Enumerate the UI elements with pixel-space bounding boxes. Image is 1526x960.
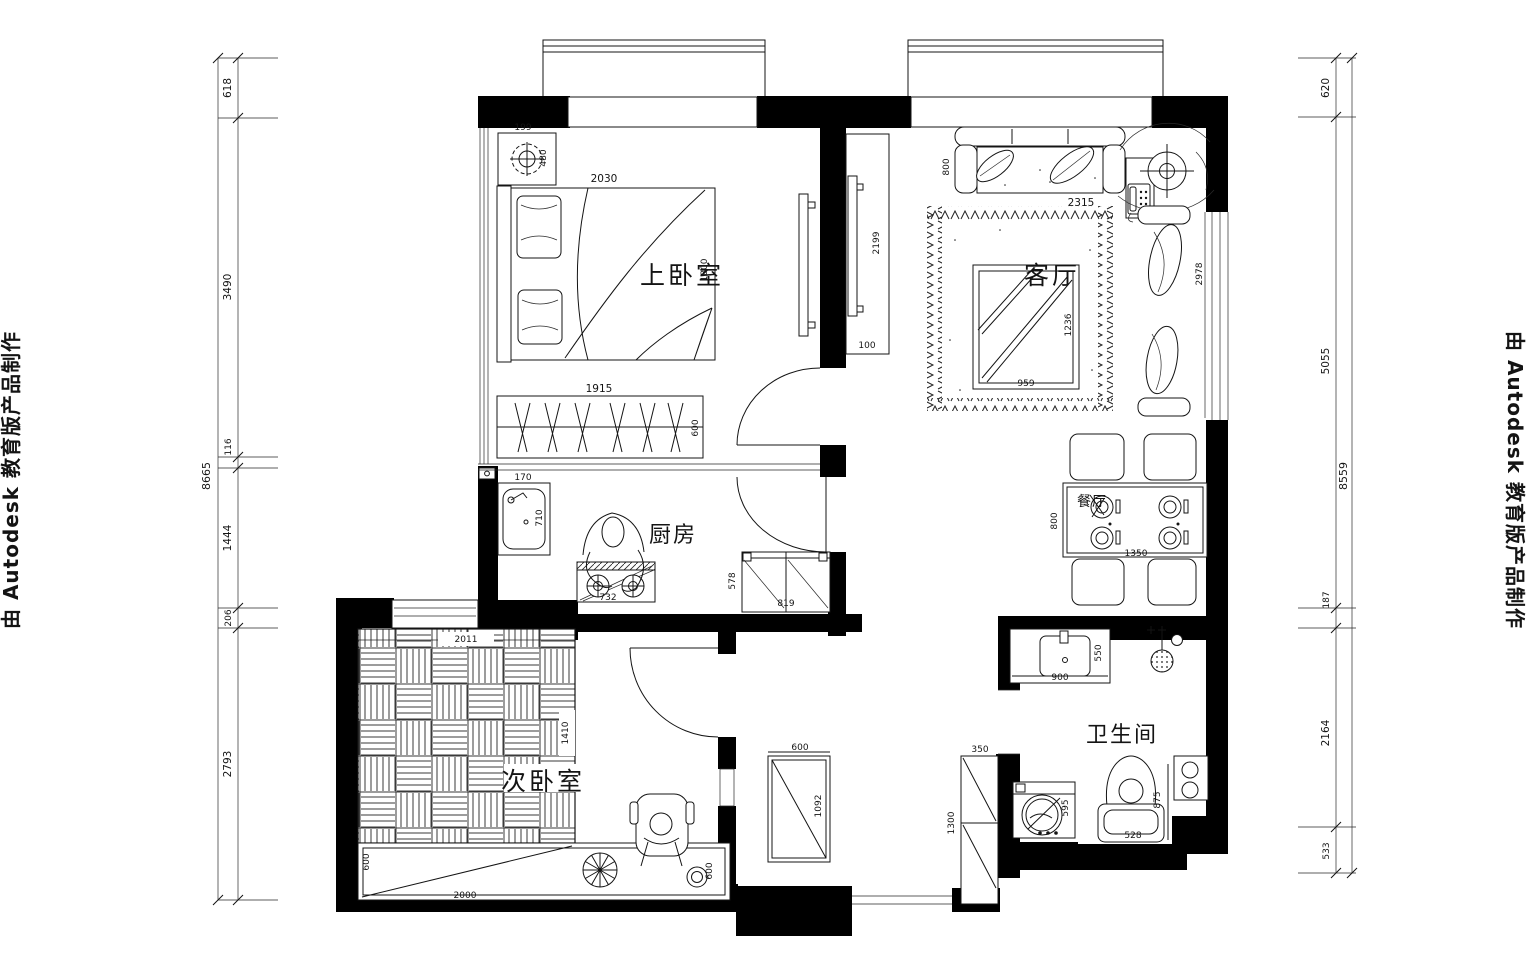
fan <box>583 853 617 887</box>
room-label-kitchen: 厨房 <box>649 523 697 548</box>
dim-vanity-depth: 550 <box>1094 644 1104 661</box>
dim-stove: 732 <box>599 593 616 603</box>
dim-sink-width: 170 <box>514 473 531 483</box>
dim-bed-length: 1800 <box>700 258 710 281</box>
dim-toilet-width: 528 <box>1124 831 1141 841</box>
bathroom-fixture <box>1174 756 1208 800</box>
room-label-second-bedroom: 次卧室 <box>501 767 585 796</box>
dim-left-total: 8665 <box>200 462 213 490</box>
dim-left-1: 3490 <box>222 274 234 301</box>
dim-right-0: 620 <box>1320 78 1332 98</box>
dim-table-depth: 800 <box>1050 512 1060 529</box>
dim-tv-wall-length: 2199 <box>872 231 882 254</box>
tatami-bed <box>358 629 575 843</box>
dim-right-4: 533 <box>1322 842 1332 859</box>
dim-wardrobe-depth: 600 <box>691 419 701 436</box>
dim-left-3: 1444 <box>222 524 234 551</box>
dim-sink-length: 710 <box>535 509 545 526</box>
tall-cabinet <box>961 756 998 904</box>
room-label-living: 客厅 <box>1024 261 1080 290</box>
dim-tatami-width: 2011 <box>455 635 478 645</box>
dim-bed-width: 2030 <box>591 173 618 185</box>
dining-chair <box>1070 434 1124 480</box>
dim-sofa-depth: 800 <box>942 158 952 175</box>
dim-desk-length: 2000 <box>454 891 477 901</box>
dining-chair <box>1148 559 1196 605</box>
dim-sofa-length: 2315 <box>1068 197 1095 209</box>
cup <box>687 867 707 887</box>
floorplan-drawing: 由 Autodesk 教育版产品制作 由 Autodesk 教育版产品制作 上卧… <box>0 0 1526 960</box>
dim-right-2: 187 <box>1322 591 1332 608</box>
dim-vanity-width: 900 <box>1051 673 1068 683</box>
dim-toilet-depth: 875 <box>1153 791 1163 808</box>
dim-scab-length: 1092 <box>814 795 824 818</box>
watermark-right: 由 Autodesk 教育版产品制作 <box>1503 331 1526 629</box>
dim-coffee-width: 959 <box>1017 379 1034 389</box>
dim-wardrobe: 1915 <box>586 383 613 395</box>
dining-chair <box>1072 559 1124 605</box>
dim-right-1: 5055 <box>1320 348 1332 375</box>
room-label-dining: 餐厅 <box>1077 494 1107 510</box>
dim-tv-wall-depth: 100 <box>858 341 875 351</box>
dim-coffee-length: 1236 <box>1064 313 1074 336</box>
dim-left-2: 116 <box>224 438 234 455</box>
dim-kcab-depth: 578 <box>728 572 738 589</box>
sofa <box>955 127 1125 193</box>
window-second-bedroom <box>392 600 478 628</box>
dim-washer: 595 <box>1061 799 1071 816</box>
dim-scab-width: 600 <box>791 743 808 753</box>
dim-left-5: 2793 <box>222 751 234 778</box>
dim-desk-depth-right: 600 <box>705 862 715 879</box>
dim-desk-depth-left: 600 <box>362 853 372 870</box>
tv-cabinet-living <box>846 134 889 354</box>
background <box>0 0 1526 960</box>
dim-tatami-length: 1410 <box>561 721 571 744</box>
dim-table-width: 1350 <box>1125 549 1148 559</box>
dim-nightstand: 199 <box>514 123 531 133</box>
dim-left-0: 618 <box>222 78 234 98</box>
dim-bcab-length: 1300 <box>947 811 957 834</box>
watermark-left: 由 Autodesk 教育版产品制作 <box>0 331 23 629</box>
room-label-bathroom: 卫生间 <box>1086 723 1158 748</box>
dim-right-total: 8559 <box>1337 462 1350 490</box>
dim-lamp: 480 <box>539 149 549 166</box>
dim-chaise-length: 2978 <box>1195 262 1205 285</box>
dim-kcab-width: 819 <box>777 599 794 609</box>
floorplan-canvas: 由 Autodesk 教育版产品制作 由 Autodesk 教育版产品制作 上卧… <box>0 0 1526 960</box>
dining-chair <box>1144 434 1196 480</box>
dim-right-3: 2164 <box>1320 719 1332 746</box>
dim-bcab-width: 350 <box>971 745 988 755</box>
wardrobe <box>497 396 703 458</box>
room-label-master-bedroom: 上卧室 <box>640 261 724 290</box>
dim-left-4: 206 <box>224 609 234 626</box>
